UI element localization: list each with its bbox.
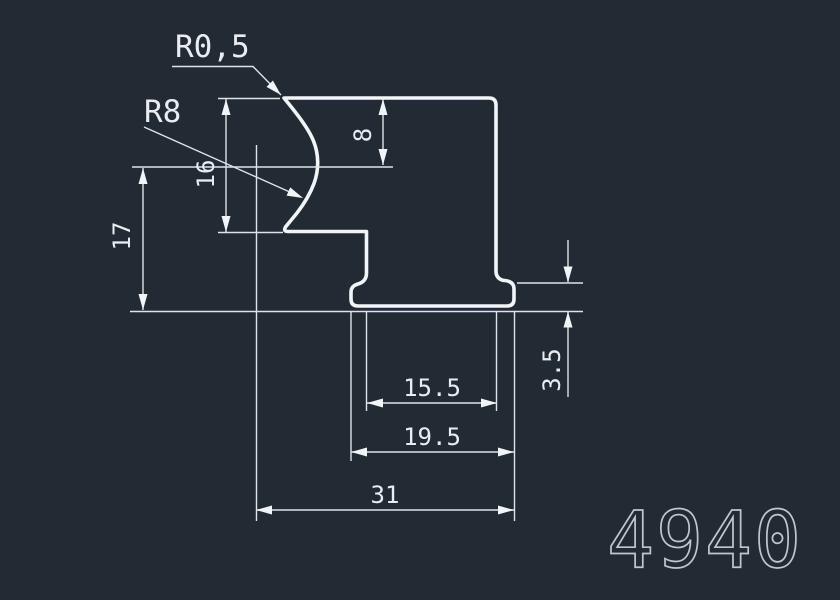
arrow-3-5-top bbox=[564, 267, 573, 283]
dim-text-19-5: 19.5 bbox=[403, 423, 461, 451]
dim-text-3-5: 3.5 bbox=[538, 348, 566, 391]
radius-groove-label: R8 bbox=[144, 94, 181, 130]
dim-text-31: 31 bbox=[371, 481, 400, 509]
arrow-31-left bbox=[256, 506, 272, 515]
arrow-8-top bbox=[379, 99, 388, 115]
arrow-leader-r8 bbox=[287, 187, 303, 198]
arrow-8-bottom bbox=[379, 149, 388, 165]
arrow-3-5-bottom bbox=[564, 312, 573, 328]
arrow-19-5-right bbox=[498, 448, 514, 457]
cad-drawing-canvas: R0,5 R8 16 17 8 3.5 15.5 19.5 31 4940 bbox=[0, 0, 840, 600]
arrow-19-5-left bbox=[351, 448, 367, 457]
arrow-31-right bbox=[498, 506, 514, 515]
dimension-arrowheads bbox=[139, 81, 573, 515]
dim-text-15-5: 15.5 bbox=[403, 374, 461, 402]
dim-text-16: 16 bbox=[192, 160, 220, 189]
radius-tip-label: R0,5 bbox=[175, 29, 250, 65]
leader-r05 bbox=[172, 67, 281, 96]
leader-r8 bbox=[144, 127, 301, 197]
profile-outline bbox=[284, 98, 514, 306]
dim-text-8: 8 bbox=[349, 128, 377, 142]
part-number: 4940 bbox=[607, 496, 803, 586]
dim-text-17: 17 bbox=[108, 222, 136, 251]
arrow-16-bottom bbox=[222, 216, 231, 232]
arrow-17-bottom bbox=[139, 294, 148, 310]
arrow-15-5-left bbox=[367, 399, 383, 408]
arrow-17-top bbox=[139, 168, 148, 184]
arrow-15-5-right bbox=[481, 399, 497, 408]
arrow-16-top bbox=[222, 99, 231, 115]
